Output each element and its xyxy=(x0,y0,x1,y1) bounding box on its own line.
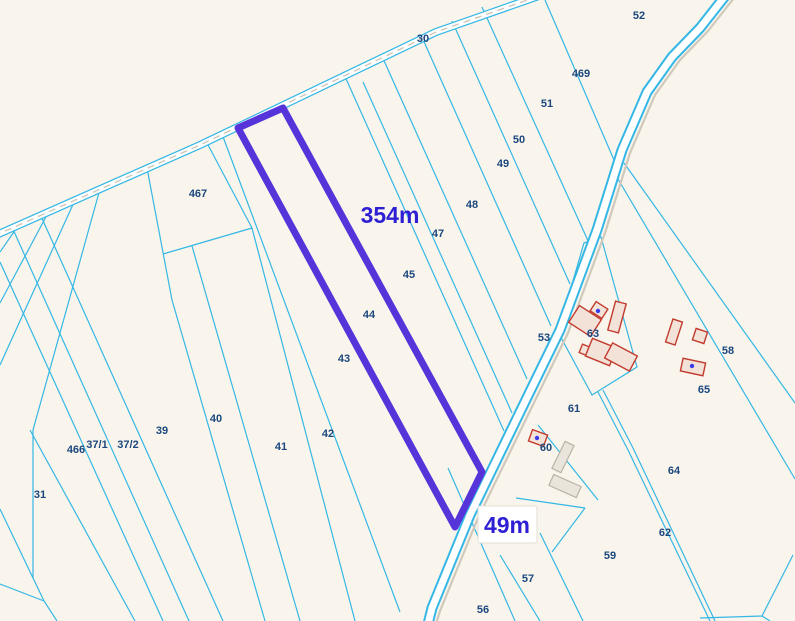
parcel-label-49: 49 xyxy=(497,158,509,170)
map-stage: 305246951504948474544434241403937/137/24… xyxy=(0,0,795,621)
parcel-label-37/1: 37/1 xyxy=(86,439,107,451)
parcel-label-469: 469 xyxy=(572,68,590,80)
parcel-label-47: 47 xyxy=(432,228,444,240)
parcel-label-62: 62 xyxy=(659,527,671,539)
highlighted-parcel[interactable] xyxy=(238,108,482,527)
building-point-icon xyxy=(596,309,600,313)
parcel-label-467: 467 xyxy=(189,188,207,200)
parcel-label-39: 39 xyxy=(156,425,168,437)
parcel-label-30: 30 xyxy=(417,33,429,45)
parcel-label-51: 51 xyxy=(541,98,553,110)
parcel-label-45: 45 xyxy=(403,269,415,281)
parcel-label-63: 63 xyxy=(587,328,599,340)
building xyxy=(692,328,707,343)
map-canvas[interactable]: 305246951504948474544434241403937/137/24… xyxy=(0,0,795,621)
parcel-label-58: 58 xyxy=(722,345,734,357)
parcel-label-40: 40 xyxy=(210,413,222,425)
parcel-label-466: 466 xyxy=(67,444,85,456)
utility-building xyxy=(549,474,581,497)
parcel-label-65: 65 xyxy=(698,384,710,396)
parcel-label-52: 52 xyxy=(633,10,645,22)
parcel-label-48: 48 xyxy=(466,199,478,211)
parcel-label-57: 57 xyxy=(522,573,534,585)
building xyxy=(666,319,683,345)
parcel-label-50: 50 xyxy=(513,134,525,146)
width-measurement-badge: 49m xyxy=(478,506,537,543)
parcel-label-59: 59 xyxy=(604,550,616,562)
building-point-icon xyxy=(690,364,694,368)
parcel-label-42: 42 xyxy=(322,428,334,440)
parcel-labels: 305246951504948474544434241403937/137/24… xyxy=(34,10,734,616)
parcel-label-31: 31 xyxy=(34,489,46,501)
parcel-label-44: 44 xyxy=(363,309,376,321)
parcel-label-43: 43 xyxy=(338,353,350,365)
parcel-label-56: 56 xyxy=(477,604,489,616)
parcel-label-60: 60 xyxy=(540,442,552,454)
building-point-icon xyxy=(535,436,539,440)
parcel-label-64: 64 xyxy=(668,465,681,477)
parcel-label-41: 41 xyxy=(275,441,287,453)
parcel-label-37/2: 37/2 xyxy=(117,439,138,451)
width-measurement-label: 49m xyxy=(484,512,530,538)
parcel-label-53: 53 xyxy=(538,332,550,344)
measurement-labels: 354m 49m xyxy=(361,202,537,543)
length-measurement-label: 354m xyxy=(361,202,420,228)
parcel-label-61: 61 xyxy=(568,403,580,415)
